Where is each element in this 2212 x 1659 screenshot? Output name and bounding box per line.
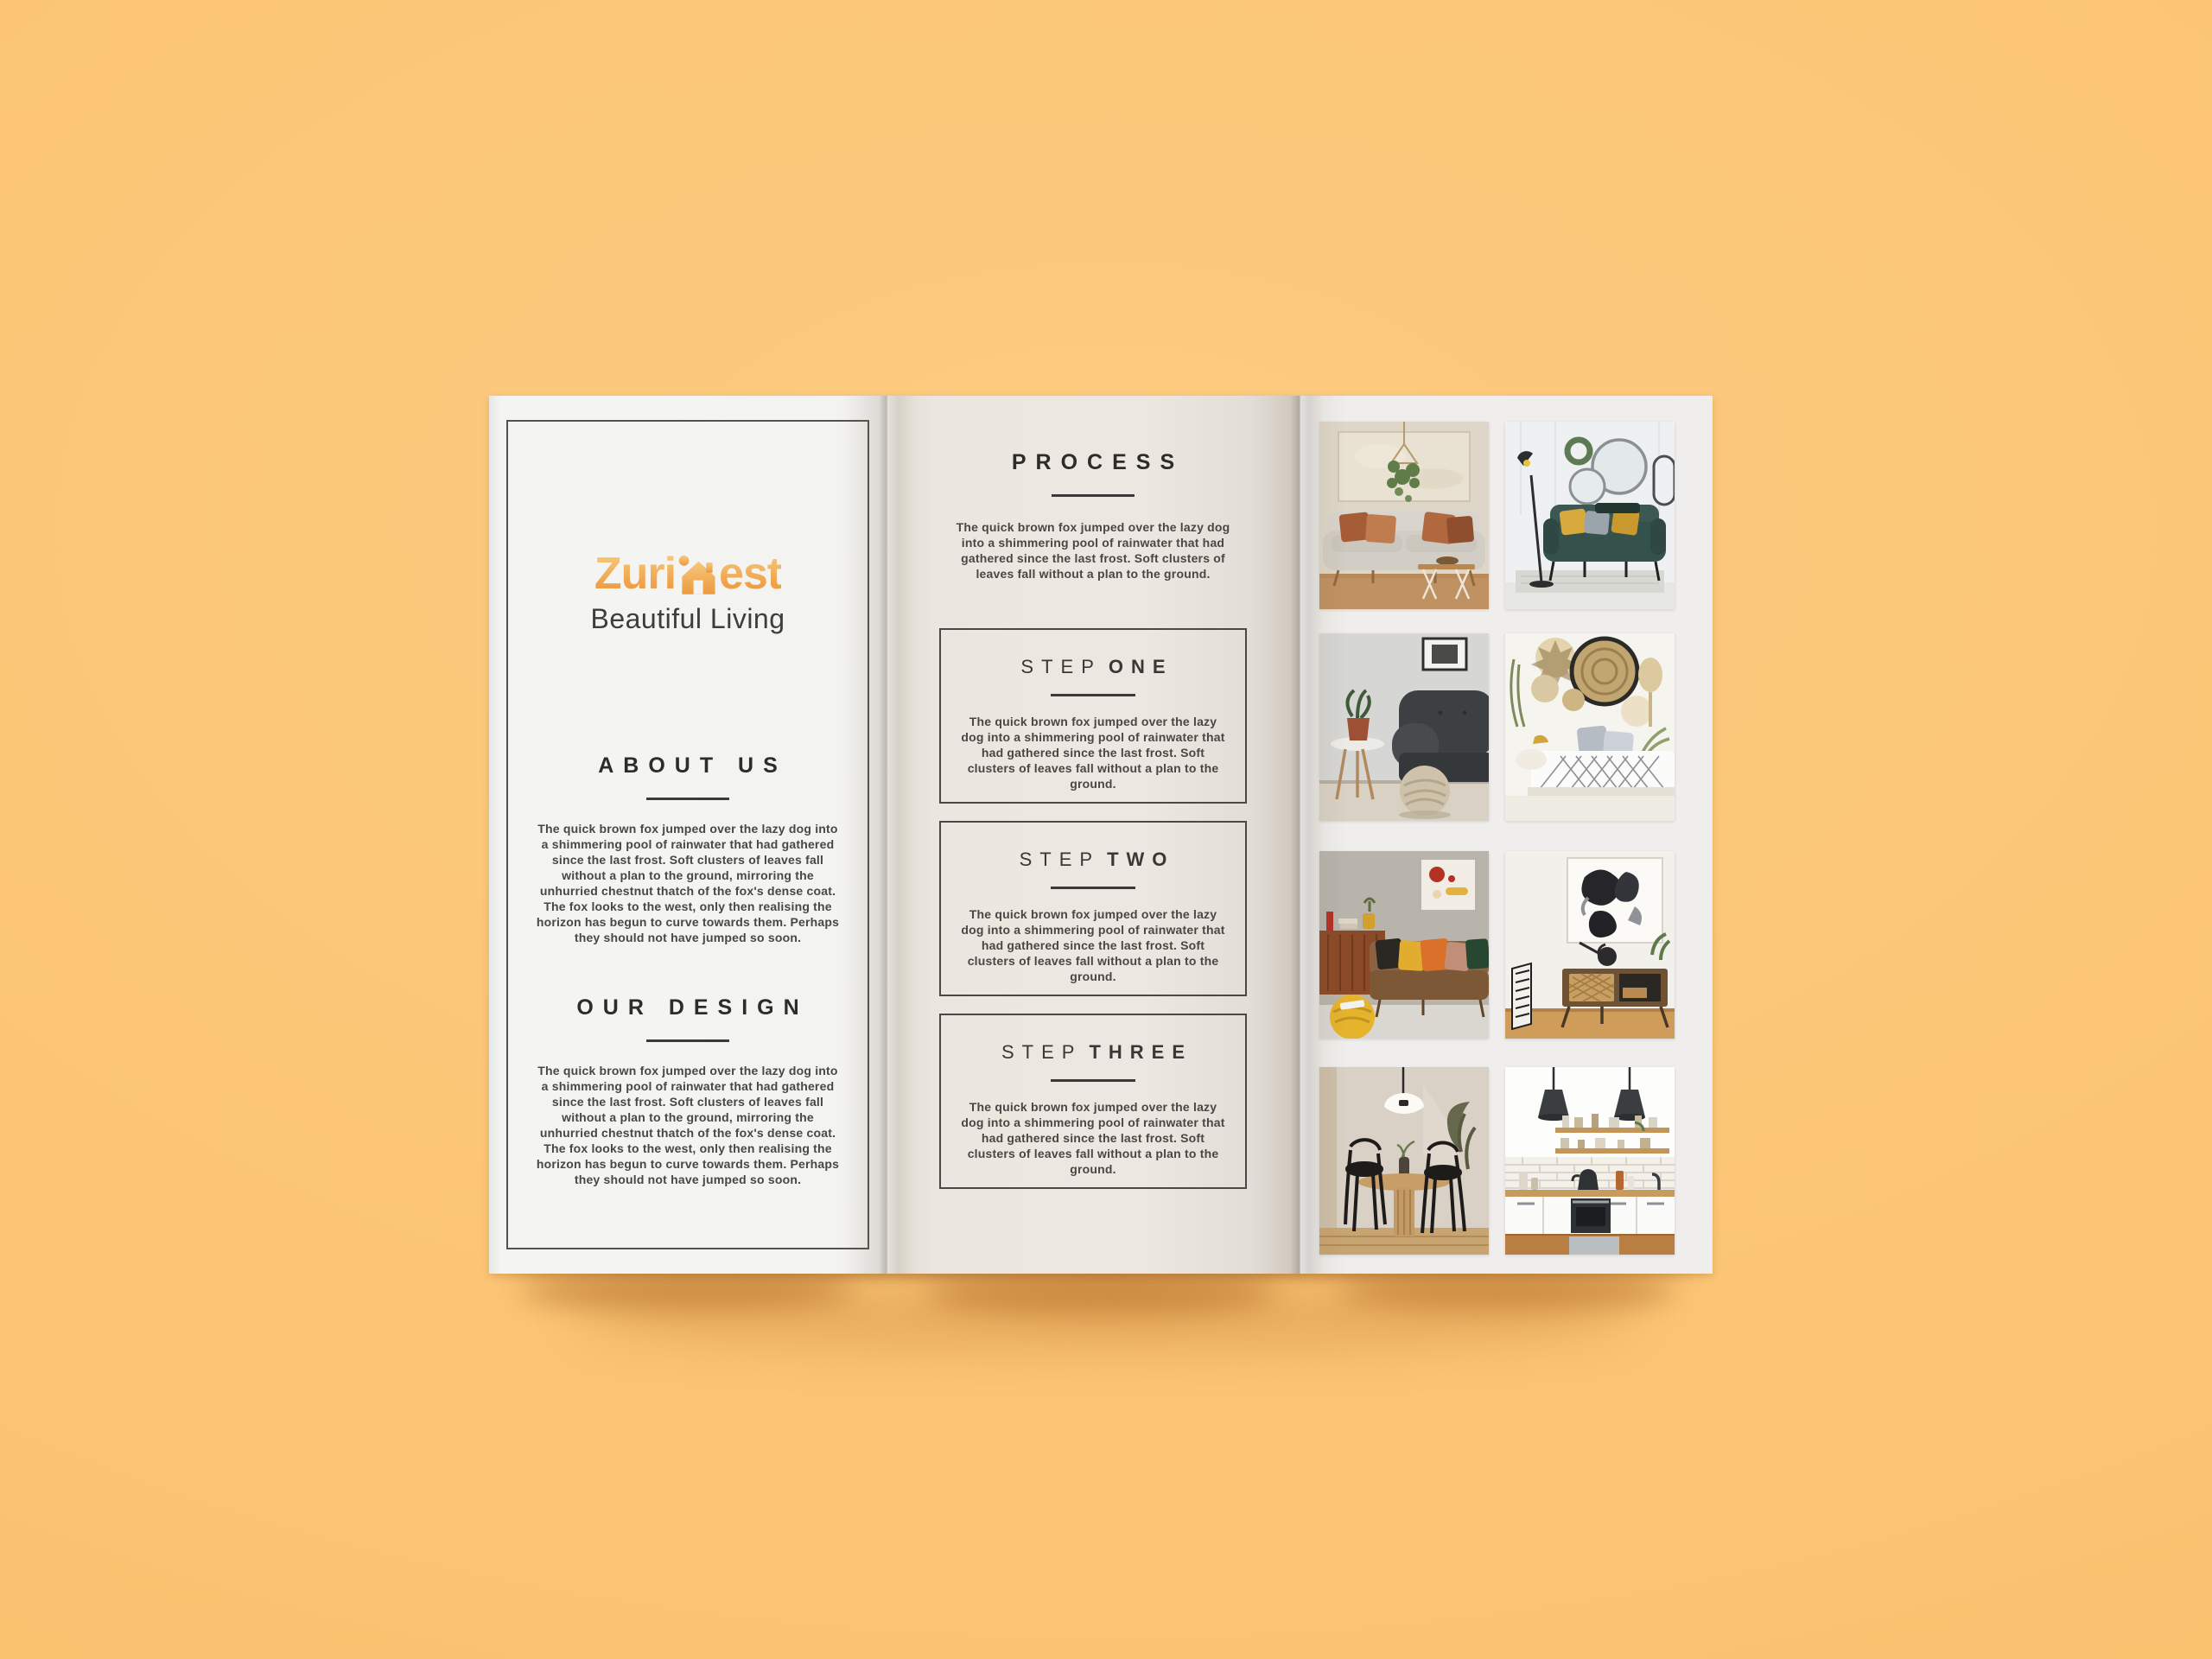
step-label: STEP [1001, 1041, 1082, 1063]
gallery-photo-kitchen [1505, 1067, 1675, 1255]
divider-line [1051, 887, 1135, 889]
process-intro: The quick brown fox jumped over the lazy… [953, 519, 1233, 582]
divider-line [1051, 1079, 1135, 1082]
photo-basket-wall-illustration [1505, 633, 1675, 821]
photo-charcoal-sofa-illustration [1319, 633, 1489, 821]
step-two-title: STEPTWO [941, 849, 1245, 871]
divider-line [1052, 494, 1135, 497]
photo-beige-sofa-illustration [1319, 422, 1489, 609]
step-label: STEP [1020, 849, 1100, 870]
panel-process: PROCESS The quick brown fox jumped over … [887, 396, 1300, 1274]
step-two-box: STEPTWO The quick brown fox jumped over … [939, 821, 1247, 996]
photo-dining-nook-illustration [1319, 1067, 1489, 1255]
step-one-title: STEPONE [941, 656, 1245, 678]
photo-brown-sofa-illustration [1319, 851, 1489, 1039]
photo-abstract-art-illustration [1505, 851, 1675, 1039]
step-number: THREE [1089, 1041, 1192, 1063]
about-us-body: The quick brown fox jumped over the lazy… [533, 821, 842, 945]
panel-gallery [1300, 396, 1713, 1274]
gallery-photo-charcoal-sofa [1319, 633, 1489, 821]
process-section: PROCESS The quick brown fox jumped over … [887, 450, 1300, 582]
step-two-body: The quick brown fox jumped over the lazy… [958, 906, 1228, 984]
brand-tagline: Beautiful Living [508, 603, 868, 635]
step-number: ONE [1109, 656, 1173, 677]
process-title: PROCESS [887, 450, 1300, 475]
logo-text-post: est [719, 553, 781, 594]
our-design-section: OUR DESIGN The quick brown fox jumped ov… [508, 995, 868, 1187]
house-with-chimney-icon [678, 555, 716, 594]
our-design-title: OUR DESIGN [508, 995, 868, 1020]
logo-text-pre: Zuri [594, 553, 676, 594]
step-three-body: The quick brown fox jumped over the lazy… [958, 1099, 1228, 1177]
step-one-body: The quick brown fox jumped over the lazy… [958, 714, 1228, 791]
divider-line [1051, 694, 1135, 696]
step-one-box: STEPONE The quick brown fox jumped over … [939, 628, 1247, 804]
gallery-photo-abstract-art [1505, 851, 1675, 1039]
step-label: STEP [1020, 656, 1101, 677]
brand-logo-block: Zuri est [508, 553, 868, 635]
gallery-photo-green-sofa [1505, 422, 1675, 609]
divider-line [646, 798, 729, 800]
about-us-section: ABOUT US The quick brown fox jumped over… [508, 753, 868, 945]
desk-background: Zuri est [0, 0, 2212, 1659]
trifold-brochure: Zuri est [489, 396, 1713, 1274]
gallery-photo-dining-nook [1319, 1067, 1489, 1255]
cover-border-frame: Zuri est [506, 420, 869, 1249]
gallery-photo-brown-sofa [1319, 851, 1489, 1039]
photo-green-sofa-illustration [1505, 422, 1675, 609]
panel-cover: Zuri est [489, 396, 887, 1274]
step-three-title: STEPTHREE [941, 1041, 1245, 1064]
zurinest-logo: Zuri est [508, 553, 868, 594]
photo-kitchen-illustration [1505, 1067, 1675, 1255]
step-number: TWO [1107, 849, 1174, 870]
gallery-photo-beige-sofa [1319, 422, 1489, 609]
step-three-box: STEPTHREE The quick brown fox jumped ove… [939, 1014, 1247, 1189]
our-design-body: The quick brown fox jumped over the lazy… [533, 1063, 842, 1187]
about-us-title: ABOUT US [508, 753, 868, 779]
divider-line [646, 1039, 729, 1042]
gallery-photo-basket-wall [1505, 633, 1675, 821]
